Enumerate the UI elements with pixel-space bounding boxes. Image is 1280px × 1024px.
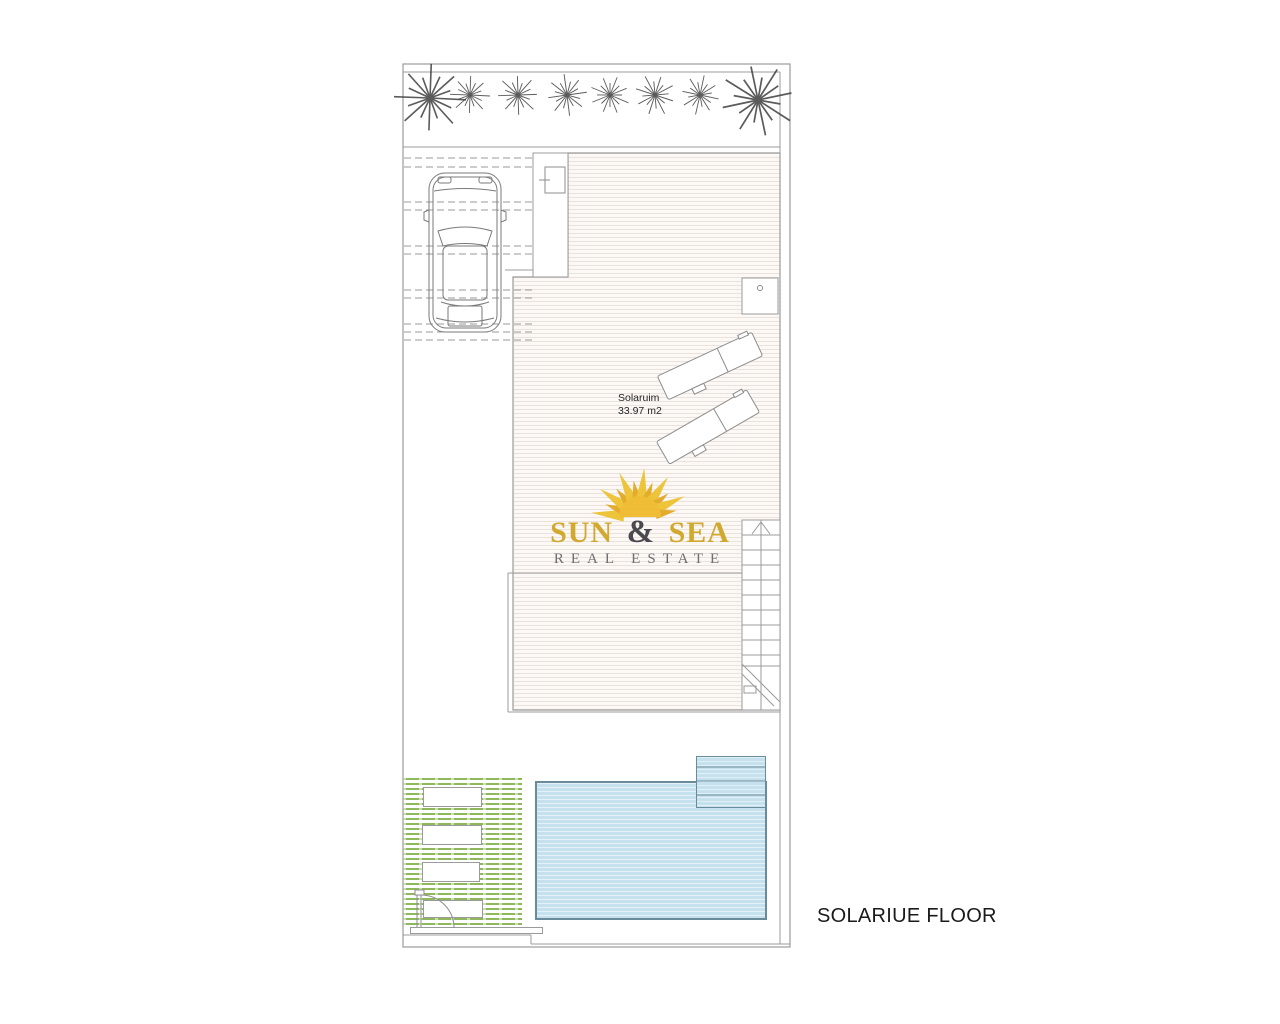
palm-plant-icon [679,72,722,118]
sun-lounger-icon [655,387,763,469]
car-top-view-icon [424,173,506,332]
palm-plant-icon [545,71,591,119]
room-area: 33.97 m2 [618,405,662,418]
plot-boundary [403,64,790,947]
swing-door [415,890,454,928]
logo-ampersand: & [622,514,661,550]
palm-plant-icon [585,70,635,118]
sun-and-sea-logo: SUN & SEA REAL ESTATE [530,517,750,568]
logo-wordmark: SUN & SEA [530,517,750,548]
palm-plant-icon [450,76,490,113]
plan-linework [0,0,1280,1024]
logo-word-sun: SUN [550,516,613,549]
outdoor-fixture-box [742,278,778,314]
floor-plan-page: SUN & SEA REAL ESTATE Solaruim 33.97 m2 … [0,0,1280,1024]
room-label: Solaruim 33.97 m2 [618,392,662,418]
palm-plant-icon [394,64,466,131]
logo-tagline: REAL ESTATE [530,551,750,568]
room-name: Solaruim [618,392,662,405]
palm-plant-icon [628,67,683,123]
floor-title: SOLARIUE FLOOR [817,905,997,928]
pool-step-lines [697,767,765,795]
palm-plant-icon [490,66,547,123]
logo-word-sea: SEA [669,516,730,549]
deck-outline [505,153,780,712]
